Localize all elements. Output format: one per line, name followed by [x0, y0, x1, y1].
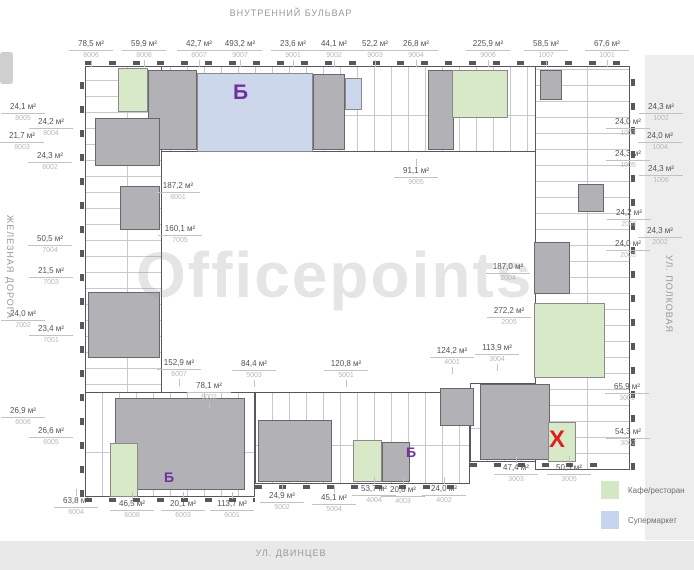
unit-label: 52,2 м²9003	[353, 39, 397, 60]
unit-area: 26,8 м²	[394, 39, 438, 51]
unit-label: 23,4 м²7001	[29, 324, 73, 345]
unit-area: 63,8 м²	[54, 496, 98, 508]
leader-line	[374, 477, 375, 484]
unit-area: 24,3 м²	[606, 149, 650, 161]
unit-area: 42,7 м²	[177, 39, 221, 51]
unit-code: 5004	[312, 505, 356, 514]
unit-area: 67,6 м²	[585, 39, 629, 51]
unit-area: 47,4 м²	[494, 463, 538, 475]
unit-area: 21,7 м²	[0, 131, 44, 143]
unit-label: 21,7 м²8003	[0, 131, 44, 152]
unit-label: 493,2 м²9007	[218, 39, 262, 60]
unit-area: 24,1 м²	[1, 102, 45, 114]
unit-area: 23,6 м²	[271, 39, 315, 51]
unit-code: 7003	[29, 278, 73, 287]
leader-line	[403, 478, 404, 485]
unit-area: 24,2 м²	[607, 208, 651, 220]
street-bottom: УЛ. ДВИНЦЕВ	[255, 548, 326, 558]
unit-code: 9006	[466, 51, 510, 60]
unit-label: 50,5 м²7004	[28, 234, 72, 255]
unit-label: 26,9 м²6006	[1, 406, 45, 427]
unit-area: 52,2 м²	[353, 39, 397, 51]
unit-code: 2003	[606, 251, 650, 260]
leader-line	[569, 456, 570, 463]
leader-line	[254, 380, 255, 387]
leader-line	[209, 402, 210, 409]
unit-area: 24,0 м²	[606, 117, 650, 129]
floorplan-page: ВНУТРЕННИЙ БУЛЬВАР УЛ. ДВИНЦЕВ ЖЕЛЕЗНАЯ …	[0, 0, 694, 570]
unit-area: 24,0 м²	[638, 131, 682, 143]
leader-line	[183, 492, 184, 499]
leader-line	[546, 60, 547, 67]
unit-code: 9005	[394, 178, 438, 187]
unit-area: 59,9 м²	[122, 39, 166, 51]
unit-area: 21,5 м²	[29, 266, 73, 278]
core-block	[95, 118, 160, 166]
unit-code: 3002	[606, 439, 650, 448]
leader-line	[76, 489, 77, 496]
cafe-room	[118, 68, 148, 112]
unit-code: 8001	[156, 193, 200, 202]
unit-area: 24,3 м²	[639, 102, 683, 114]
unit-code: 8007	[177, 51, 221, 60]
leader-line	[416, 159, 417, 166]
unit-label: 47,4 м²3003	[494, 463, 538, 484]
railway-strip	[0, 52, 13, 84]
leader-line	[240, 60, 241, 67]
unit-area: 152,9 м²	[157, 358, 201, 370]
unit-label: 113,9 м²3004	[475, 343, 519, 364]
unit-label: 20,1 м²6003	[161, 499, 205, 520]
unit-label: 78,1 м²6002	[187, 381, 231, 402]
supermarket-color-swatch	[601, 511, 619, 529]
unit-area: 54,3 м²	[606, 427, 650, 439]
facade-notches	[85, 61, 630, 65]
unit-label: 24,0 м²4002	[422, 484, 466, 505]
unit-area: 20,8 м²	[381, 485, 425, 497]
unit-label: 65,9 м²3001	[605, 382, 649, 403]
unit-area: 120,8 м²	[324, 359, 368, 371]
unit-code: 5001	[324, 371, 368, 380]
core-block	[428, 70, 454, 150]
leader-line	[232, 492, 233, 499]
unit-code: 3004	[475, 355, 519, 364]
unit-area: 50,3 м²	[547, 463, 591, 475]
unit-code: 9004	[394, 51, 438, 60]
legend-label-supermarket: Супермаркет	[628, 516, 677, 525]
unit-area: 24,3 м²	[28, 151, 72, 163]
leader-line	[91, 60, 92, 67]
leader-line	[497, 364, 498, 371]
unit-label: 67,6 м²1001	[585, 39, 629, 60]
unit-label: 160,1 м²7005	[158, 224, 202, 245]
unit-label: 26,6 м²6005	[29, 426, 73, 447]
street-top: ВНУТРЕННИЙ БУЛЬВАР	[230, 8, 353, 18]
unit-code: 9007	[218, 51, 262, 60]
unit-code: 1007	[524, 51, 568, 60]
leader-line	[293, 60, 294, 67]
leader-line	[607, 60, 608, 67]
unit-code: 5003	[232, 371, 276, 380]
supermarket-room	[197, 73, 313, 152]
unit-area: 58,5 м²	[524, 39, 568, 51]
cafe-color-swatch	[601, 481, 619, 499]
unit-code: 3003	[494, 475, 538, 484]
leader-line	[375, 60, 376, 67]
supermarket-marker: Б	[233, 82, 248, 103]
unit-label: 45,1 м²5004	[312, 493, 356, 514]
unit-code: 4001	[430, 358, 474, 367]
unit-code: 6007	[157, 370, 201, 379]
unit-code: 9003	[353, 51, 397, 60]
unit-code: 6001	[210, 511, 254, 520]
unit-code: 6002	[187, 393, 231, 402]
unit-label: 84,4 м²5003	[232, 359, 276, 380]
unit-label: 91,1 м²9005	[394, 166, 438, 187]
supermarket-room	[345, 78, 362, 110]
unit-label: 23,6 м²9001	[271, 39, 315, 60]
unit-label: 78,5 м²8006	[69, 39, 113, 60]
core-block	[480, 384, 550, 460]
unit-code: 4002	[422, 496, 466, 505]
cafe-room	[353, 440, 382, 482]
unit-code: 7005	[158, 236, 202, 245]
leader-line	[334, 60, 335, 67]
unit-label: 187,0 м²2004	[486, 262, 530, 283]
unit-area: 78,1 м²	[187, 381, 231, 393]
unit-code: 1006	[639, 176, 683, 185]
unit-area: 50,5 м²	[28, 234, 72, 246]
supermarket-marker: Б	[164, 470, 174, 484]
unit-label: 21,5 м²7003	[29, 266, 73, 287]
unit-area: 44,1 м²	[312, 39, 356, 51]
unit-area: 26,9 м²	[1, 406, 45, 418]
unit-area: 26,6 м²	[29, 426, 73, 438]
unit-label: 24,3 м²8002	[28, 151, 72, 172]
unit-label: 24,0 м²2003	[606, 239, 650, 260]
unit-code: 6004	[54, 508, 98, 517]
unit-label: 50,3 м²3005	[547, 463, 591, 484]
unit-label: 44,1 м²9002	[312, 39, 356, 60]
unit-area: 24,0 м²	[606, 239, 650, 251]
leader-line	[132, 492, 133, 499]
unit-area: 24,0 м²	[422, 484, 466, 496]
leader-line	[452, 367, 453, 374]
unit-label: 124,2 м²4001	[430, 346, 474, 367]
core-block	[313, 74, 345, 150]
unit-area: 113,9 м²	[475, 343, 519, 355]
supermarket-marker: Б	[406, 445, 416, 459]
legend-item-cafe: Кафе/ресторан	[601, 481, 685, 499]
unit-label: 54,3 м²3002	[606, 427, 650, 448]
unit-area: 24,9 м²	[260, 491, 304, 503]
unit-label: 26,8 м²9004	[394, 39, 438, 60]
unit-code: 1001	[585, 51, 629, 60]
x-marker: Х	[549, 428, 565, 452]
core-block	[120, 186, 160, 230]
unit-area: 113,7 м²	[210, 499, 254, 511]
unit-code: 2004	[486, 274, 530, 283]
leader-line	[199, 60, 200, 67]
unit-area: 65,9 м²	[605, 382, 649, 394]
core-block	[258, 420, 332, 482]
legend-item-supermarket: Супермаркет	[601, 511, 685, 529]
core-block	[440, 388, 474, 426]
core-block	[578, 184, 604, 212]
unit-code: 3005	[547, 475, 591, 484]
leader-line	[516, 456, 517, 463]
unit-area: 45,1 м²	[312, 493, 356, 505]
unit-code: 5002	[260, 503, 304, 512]
unit-label: 58,5 м²1007	[524, 39, 568, 60]
core-block	[540, 70, 562, 100]
unit-code: 7001	[29, 336, 73, 345]
leader-line	[488, 60, 489, 67]
legend: Кафе/ресторан Супермаркет	[601, 481, 685, 541]
unit-code: 6003	[161, 511, 205, 520]
unit-area: 187,0 м²	[486, 262, 530, 274]
unit-area: 24,3 м²	[638, 226, 682, 238]
unit-area: 84,4 м²	[232, 359, 276, 371]
street-right: УЛ. ПОЛКОВАЯ	[664, 229, 674, 359]
unit-label: 59,9 м²8008	[122, 39, 166, 60]
unit-label: 24,3 м²1006	[639, 164, 683, 185]
cafe-room	[110, 443, 138, 497]
unit-area: 160,1 м²	[158, 224, 202, 236]
unit-label: 187,2 м²8001	[156, 181, 200, 202]
unit-code: 7004	[28, 246, 72, 255]
street-left: ЖЕЛЕЗНАЯ ДОРОГА	[5, 202, 15, 332]
unit-code: 3001	[605, 394, 649, 403]
unit-label: 24,9 м²5002	[260, 491, 304, 512]
unit-area: 187,2 м²	[156, 181, 200, 193]
unit-code: 9001	[271, 51, 315, 60]
leader-line	[416, 60, 417, 67]
unit-area: 272,2 м²	[487, 306, 531, 318]
unit-label: 225,9 м²9006	[466, 39, 510, 60]
legend-label-cafe: Кафе/ресторан	[628, 486, 685, 495]
watermark: Officepoints	[136, 238, 533, 312]
bottom-street-band	[0, 541, 694, 570]
cafe-room	[452, 70, 508, 118]
unit-area: 91,1 м²	[394, 166, 438, 178]
unit-label: 46,5 м²6008	[110, 499, 154, 520]
unit-code: 8008	[122, 51, 166, 60]
unit-label: 63,8 м²6004	[54, 496, 98, 517]
unit-area: 225,9 м²	[466, 39, 510, 51]
leader-line	[282, 484, 283, 491]
unit-code: 4003	[381, 497, 425, 506]
unit-area: 493,2 м²	[218, 39, 262, 51]
unit-area: 124,2 м²	[430, 346, 474, 358]
unit-area: 46,5 м²	[110, 499, 154, 511]
unit-label: 152,9 м²6007	[157, 358, 201, 379]
facade-notches	[80, 66, 84, 497]
unit-code: 2005	[487, 318, 531, 327]
unit-area: 23,4 м²	[29, 324, 73, 336]
unit-area: 78,5 м²	[69, 39, 113, 51]
unit-code: 8006	[69, 51, 113, 60]
leader-line	[334, 486, 335, 493]
unit-label: 272,2 м²2005	[487, 306, 531, 327]
unit-label: 42,7 м²8007	[177, 39, 221, 60]
unit-code: 6005	[29, 438, 73, 447]
unit-label: 113,7 м²6001	[210, 499, 254, 520]
leader-line	[346, 380, 347, 387]
unit-area: 20,1 м²	[161, 499, 205, 511]
leader-line	[179, 379, 180, 386]
unit-code: 6008	[110, 511, 154, 520]
unit-area: 24,2 м²	[29, 117, 73, 129]
unit-code: 9002	[312, 51, 356, 60]
unit-label: 120,8 м²5001	[324, 359, 368, 380]
cafe-room	[534, 303, 605, 378]
leader-line	[144, 60, 145, 67]
unit-area: 24,3 м²	[639, 164, 683, 176]
unit-label: 20,8 м²4003	[381, 485, 425, 506]
leader-line	[444, 477, 445, 484]
core-block	[534, 242, 570, 294]
unit-code: 8002	[28, 163, 72, 172]
